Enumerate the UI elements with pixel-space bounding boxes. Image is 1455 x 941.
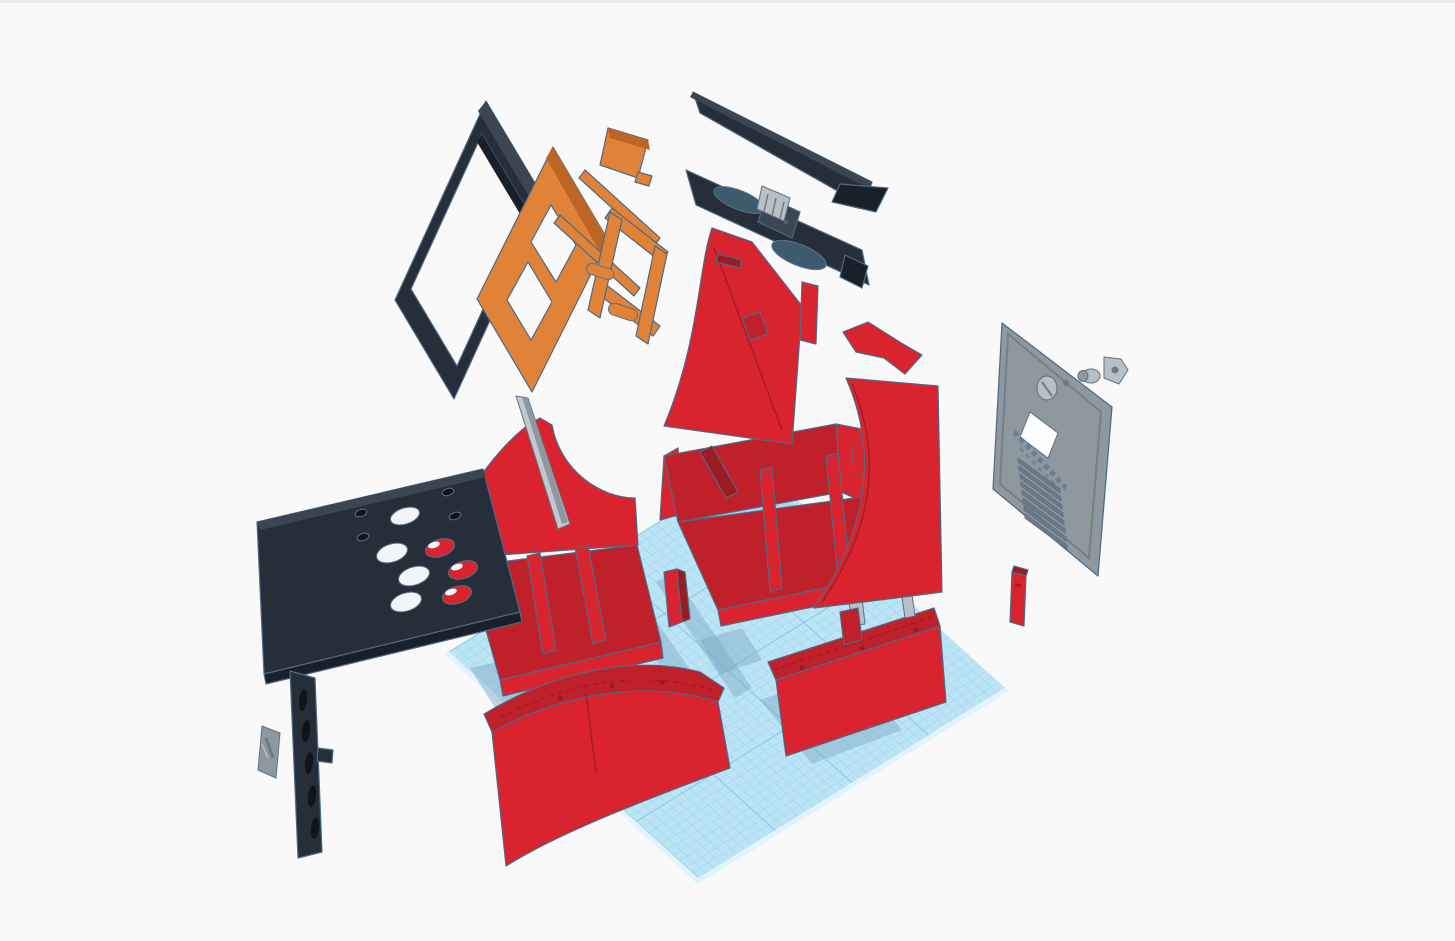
marquee-flange xyxy=(832,184,888,212)
front-panel-tab xyxy=(317,748,333,763)
access-door-small[interactable] xyxy=(1010,566,1028,626)
mounting-plate-small[interactable] xyxy=(258,726,280,778)
plate-face xyxy=(258,726,280,778)
door-face xyxy=(1010,572,1026,626)
box-screw-hole xyxy=(800,666,805,671)
stand-bracket[interactable] xyxy=(600,128,652,186)
side-right-hook xyxy=(843,322,922,374)
back-panel[interactable] xyxy=(993,323,1112,576)
skirt-screw-hole xyxy=(660,680,665,685)
side-right-foot-tab xyxy=(840,608,862,645)
control-front-panel[interactable] xyxy=(290,671,333,858)
skirt-screw-hole xyxy=(610,684,615,689)
barrel-tip xyxy=(1078,371,1088,382)
side-bracket-strip xyxy=(800,282,818,344)
riser-pillar[interactable] xyxy=(664,569,690,627)
box-screw-hole xyxy=(860,646,865,651)
back-panel-hole xyxy=(1063,380,1069,386)
bracket-tab xyxy=(635,172,652,186)
lock-keyhole xyxy=(1112,367,1119,374)
marquee-edge-highlight xyxy=(690,92,872,188)
lock-barrel[interactable] xyxy=(1078,369,1100,383)
lock-plate[interactable] xyxy=(1104,357,1128,384)
box-screw-hole xyxy=(914,628,919,633)
stand-leg xyxy=(636,246,667,344)
viewport-3d[interactable] xyxy=(0,0,1455,941)
skirt-screw-hole xyxy=(558,696,563,701)
